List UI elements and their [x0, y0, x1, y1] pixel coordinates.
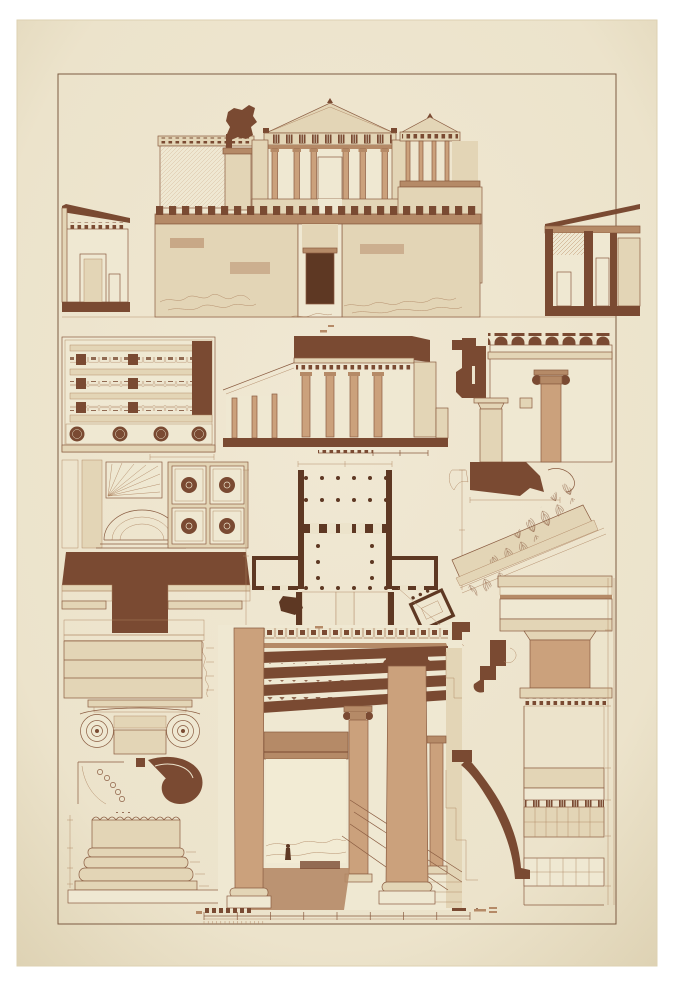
- egg-border-band: [82, 460, 102, 548]
- figure-perspective-view: [218, 625, 462, 910]
- frieze-grid: [524, 807, 604, 837]
- mutule-guttae: [500, 587, 612, 595]
- egg-and-dart: [114, 716, 166, 728]
- scotia: [84, 857, 188, 868]
- figure-number-mark: [315, 626, 323, 629]
- volute-right: [167, 715, 200, 748]
- rosette-coffers: [168, 462, 248, 548]
- ornament-ticks-left: [70, 556, 112, 560]
- central-ramp: [336, 592, 354, 630]
- central-doorway: [318, 157, 342, 201]
- base-plinth: [545, 306, 640, 316]
- fluted-shaft: [92, 820, 180, 848]
- architrave-band: [524, 768, 604, 788]
- pier-2: [584, 231, 593, 306]
- hanging-dentils: [524, 698, 606, 705]
- dentil-row: [64, 222, 124, 229]
- dim-label-mark: [540, 850, 556, 853]
- lower-torus: [79, 868, 193, 881]
- bastion-walls: [155, 206, 481, 317]
- cornice-band: [488, 352, 612, 359]
- lintel-beam: [264, 732, 348, 759]
- left-bastion: [155, 224, 298, 317]
- plate-canvas: [0, 0, 674, 990]
- small-door: [109, 274, 120, 302]
- ornament-ticks-right: [182, 556, 240, 560]
- left-caption-mark: [196, 911, 202, 914]
- neck-flutes: [114, 730, 166, 754]
- left-anta-wall: [252, 140, 268, 208]
- dark-taenia-band: [524, 800, 604, 807]
- plinth-step-2: [68, 890, 230, 903]
- echinus-capital: [524, 631, 596, 640]
- sunburst-panel: [106, 462, 162, 498]
- upper-torus: [88, 848, 184, 857]
- meander-base-band: [62, 445, 215, 452]
- plain-wall: [524, 706, 604, 768]
- ceiling-ornament-band: [262, 628, 448, 639]
- rounded-crenellation: [488, 333, 612, 345]
- fluted-shaft: [530, 640, 590, 688]
- base-plinth: [62, 302, 130, 312]
- anta-stem: [112, 585, 168, 633]
- triglyph-band: [500, 599, 612, 619]
- pier-3: [610, 233, 617, 306]
- ornament-band: [70, 415, 212, 422]
- doorway-vista: [266, 759, 346, 863]
- volute-left: [81, 715, 114, 748]
- taenia: [500, 595, 612, 599]
- pier-1: [545, 229, 553, 306]
- corner-pilaster: [62, 208, 67, 302]
- stylobate: [223, 438, 448, 447]
- door-frame: [596, 258, 609, 306]
- shingle-hatch: [548, 233, 584, 255]
- crenellation: [155, 206, 481, 215]
- anta: [618, 238, 640, 306]
- anta-pier: [414, 362, 436, 437]
- architrave: [500, 619, 612, 631]
- fascia: [294, 358, 414, 363]
- small-door: [557, 272, 571, 306]
- right-bastion: [342, 224, 480, 317]
- gate-opening: [306, 252, 334, 304]
- triglyph-frieze: [268, 135, 392, 144]
- dim-label-mark: [116, 810, 130, 813]
- parapet-block: [520, 398, 532, 408]
- plinth-step-1: [75, 881, 197, 890]
- column-top-circles: [66, 424, 212, 444]
- plate-page: [0, 0, 674, 990]
- fasciae-block: [64, 641, 202, 698]
- block-course-grid: [524, 858, 604, 886]
- figure-number-mark: [320, 330, 327, 333]
- figure-number-mark: [328, 325, 334, 327]
- dentils: [296, 364, 412, 371]
- figure-ceiling-coffer-plan: [62, 337, 215, 452]
- abacus: [88, 700, 192, 707]
- low-wall-right: [436, 408, 448, 438]
- stylobate-band: [520, 688, 612, 698]
- geison: [498, 576, 612, 587]
- wall-strip: [192, 341, 212, 415]
